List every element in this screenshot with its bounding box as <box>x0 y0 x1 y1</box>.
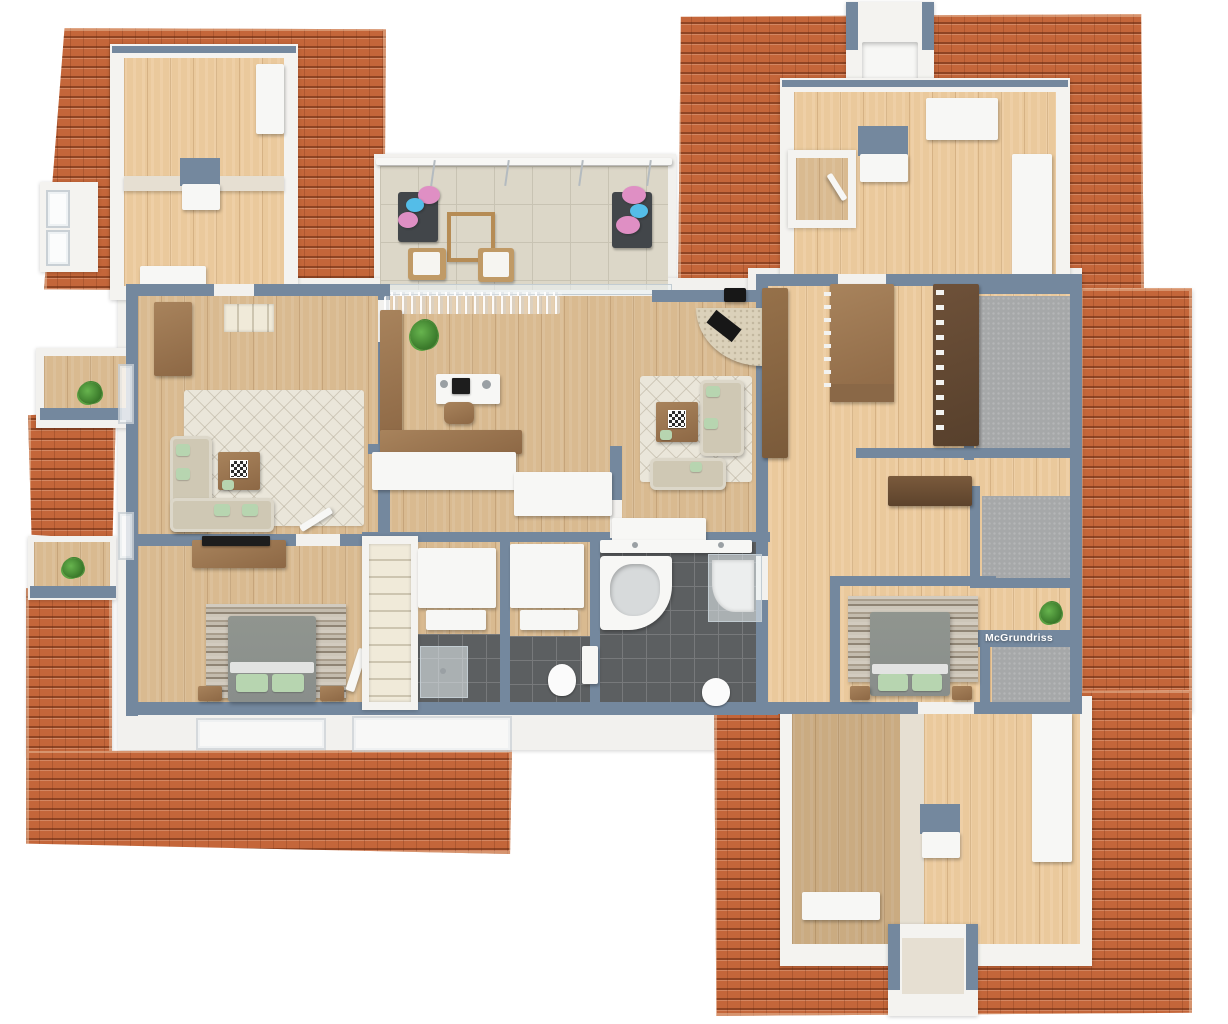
door-gap-bedroom-left <box>296 534 340 546</box>
sofa-pillow <box>706 386 720 397</box>
wc-wardrobe <box>510 544 584 608</box>
wall-closet-top-top <box>964 284 1082 294</box>
hall-closet-cabinet <box>418 548 496 608</box>
attic-top-right-wall-cap <box>782 80 1068 87</box>
potted-plant <box>62 558 84 578</box>
office-sideboard-a <box>372 452 516 490</box>
shower-drain <box>440 668 446 674</box>
hallway-wardrobe <box>154 302 192 376</box>
table-cushion <box>660 430 672 440</box>
flowers-pink <box>616 216 640 234</box>
attic-top-left-wardrobe <box>256 64 284 134</box>
wc-bench <box>520 610 578 630</box>
office-cabinet-horizontal <box>380 430 522 454</box>
left-dormer-window-1 <box>46 190 70 228</box>
wc-side-table <box>582 646 598 684</box>
nightstand <box>198 686 222 701</box>
roof-left-small <box>28 410 116 540</box>
staircase <box>369 544 411 702</box>
sofa-pillow <box>176 444 190 456</box>
wall-bedroom-right-left <box>830 576 840 714</box>
left-wall-window-2 <box>118 512 134 560</box>
corridor-plant <box>1040 602 1062 624</box>
office-sideboard-b <box>514 472 612 516</box>
wall-wc-left <box>500 532 510 712</box>
kitchen-island-front <box>830 384 894 402</box>
office-curtain <box>384 296 560 314</box>
dormer-chimney-cap-left <box>846 2 858 50</box>
attic-bottom-right-wardrobe <box>1032 712 1072 862</box>
hallway-steps <box>224 304 274 332</box>
office-cabinet-vertical <box>380 310 402 442</box>
nightstand <box>952 686 972 700</box>
dormer-bottom-cap-left <box>888 924 900 990</box>
left-nook-lower-wall <box>30 586 116 598</box>
bookshelf-books <box>936 290 944 438</box>
lounge-chair-left-cushion <box>413 252 440 275</box>
wall-right-mid <box>856 448 1082 458</box>
wall-bath-left <box>590 532 600 712</box>
bedroom-left-sheet-fold <box>230 662 314 673</box>
watermark: McGrundriss <box>978 630 1089 647</box>
flowers-pink <box>398 212 418 228</box>
attic-top-left-chimney-cap <box>180 158 220 186</box>
fireplace-flue <box>724 288 746 302</box>
bed-pillow <box>272 674 304 692</box>
terrace-railing <box>376 158 672 165</box>
bed-pillow <box>236 674 268 692</box>
flowers-blue <box>406 198 424 212</box>
roof-bottom-left <box>26 750 512 854</box>
roof-right <box>1080 288 1192 712</box>
faucet <box>718 542 724 548</box>
left-dormer-window-2 <box>46 230 70 266</box>
sofa-pillow <box>214 504 230 516</box>
bedroom-right-sheet-fold <box>872 664 948 674</box>
chess-board <box>230 460 248 478</box>
bathroom-vanity <box>600 540 752 553</box>
sofa-pillow <box>690 462 702 472</box>
faucet <box>632 542 638 548</box>
walk-in-closet-middle-floor <box>982 496 1070 578</box>
sofa-pillow <box>176 468 190 480</box>
dormer-bottom-cap-right <box>966 924 978 990</box>
library-counter-left <box>762 288 788 458</box>
hall-closet-bench <box>426 610 486 630</box>
desk-deco <box>440 380 448 388</box>
bathroom-toilet <box>702 678 730 706</box>
desk-chair <box>444 402 474 424</box>
wc-toilet <box>548 664 576 696</box>
nightstand <box>850 686 870 700</box>
office-plant <box>410 320 438 350</box>
sofa-center-horizontal <box>650 458 726 490</box>
door-gap-attic-bottom-right <box>918 702 974 714</box>
bathtub-basin <box>610 564 660 616</box>
tv-lowboard <box>888 476 972 506</box>
lounge-chair-right-cushion <box>483 252 509 277</box>
attic-bottom-right-sideboard <box>802 892 880 920</box>
flowers-pink <box>622 186 646 204</box>
desk-deco <box>482 380 491 389</box>
bed-pillow <box>878 674 908 691</box>
bed-pillow <box>912 674 942 691</box>
facade-window-2 <box>352 716 512 752</box>
attic-top-right-wardrobe <box>926 98 998 140</box>
monitor <box>452 378 470 394</box>
wall-bedroom-right-top <box>830 576 996 586</box>
wall-left-top <box>126 284 390 296</box>
walk-in-closet-top-floor <box>976 296 1070 448</box>
facade-window-1 <box>196 718 326 750</box>
attic-bottom-right-chimney-base <box>922 832 960 858</box>
roof-left-strip <box>26 588 112 756</box>
left-wall-window-1 <box>118 364 134 424</box>
table-cushion <box>222 480 234 490</box>
attic-top-right-chimney-cap <box>858 126 908 156</box>
wall-bottom-main <box>126 702 778 715</box>
door-gap-attic-top-left <box>214 284 254 296</box>
nightstand <box>320 686 344 701</box>
floorplan-scene: McGrundriss <box>0 0 1228 1024</box>
shower-tray <box>712 560 754 612</box>
bedroom-left-tv <box>202 536 270 546</box>
wall-right-outer <box>1070 274 1082 714</box>
attic-bottom-right-chimney-cap <box>920 804 960 834</box>
sofa-pillow <box>242 504 258 516</box>
chess-board <box>668 410 686 428</box>
dormer-bottom-floor <box>902 938 964 994</box>
dormer-chimney-cap-right <box>922 2 934 50</box>
island-books <box>824 292 831 396</box>
attic-top-left-chimney-base <box>182 184 220 210</box>
sofa-pillow <box>704 418 718 429</box>
wall-left-outer <box>126 284 138 716</box>
attic-top-right-shelf <box>1012 154 1052 284</box>
attic-top-left-wall-cap <box>112 46 296 53</box>
attic-top-right-chimney-base <box>860 154 908 182</box>
bedroom-right-closet-floor <box>992 646 1072 706</box>
potted-plant <box>78 382 102 404</box>
